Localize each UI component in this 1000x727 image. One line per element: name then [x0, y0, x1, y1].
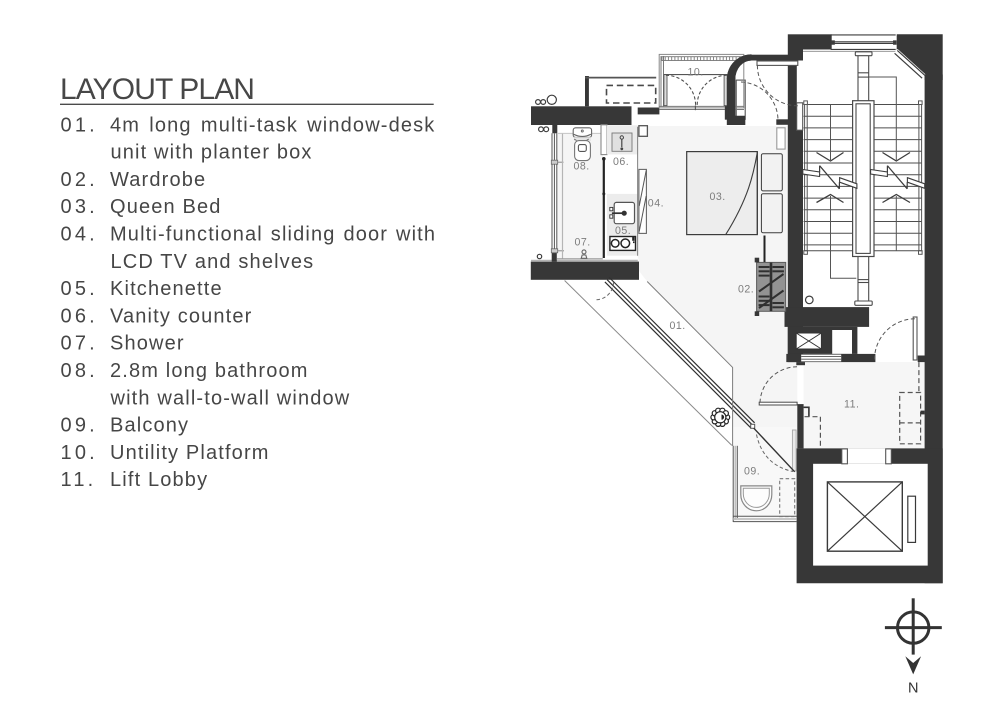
svg-text:09.: 09.	[61, 415, 98, 437]
svg-text:LAYOUT PLAN: LAYOUT PLAN	[60, 73, 254, 106]
svg-text:10.: 10.	[61, 442, 98, 464]
svg-text:03.: 03.	[61, 196, 98, 218]
svg-text:07.: 07.	[575, 237, 591, 249]
svg-text:N: N	[908, 681, 918, 697]
svg-text:Multi-functional sliding door: Multi-functional sliding door with	[110, 224, 436, 246]
svg-text:with wall-to-wall window: with wall-to-wall window	[110, 387, 351, 409]
svg-text:08.: 08.	[61, 360, 98, 382]
svg-text:06.: 06.	[613, 156, 629, 168]
svg-text:Queen Bed: Queen Bed	[110, 196, 222, 218]
svg-text:11.: 11.	[844, 399, 859, 411]
svg-text:Shower: Shower	[110, 333, 185, 355]
svg-text:04.: 04.	[648, 198, 664, 210]
svg-text:unit with planter box: unit with planter box	[111, 142, 313, 164]
svg-text:01.: 01.	[670, 320, 686, 332]
svg-text:LCD TV and shelves: LCD TV and shelves	[111, 251, 315, 273]
svg-text:05.: 05.	[615, 225, 631, 237]
svg-text:11.: 11.	[61, 469, 97, 491]
svg-text:01.: 01.	[61, 114, 98, 136]
svg-text:Kitchenette: Kitchenette	[110, 278, 223, 300]
svg-text:Lift Lobby: Lift Lobby	[110, 469, 208, 491]
svg-text:06.: 06.	[61, 305, 98, 327]
svg-text:Vanity counter: Vanity counter	[110, 305, 252, 327]
svg-text:09.: 09.	[744, 466, 760, 478]
svg-text:03.: 03.	[710, 191, 726, 203]
svg-text:05.: 05.	[61, 278, 98, 300]
svg-text:Balcony: Balcony	[110, 415, 189, 437]
svg-text:02.: 02.	[738, 284, 754, 296]
svg-text:2.8m long bathroom: 2.8m long bathroom	[110, 360, 309, 382]
svg-text:10.: 10.	[688, 66, 704, 78]
svg-text:04.: 04.	[61, 224, 98, 246]
svg-text:07.: 07.	[61, 333, 98, 355]
svg-text:02.: 02.	[61, 169, 98, 191]
svg-text:4m long multi-task window-desk: 4m long multi-task window-desk	[110, 114, 435, 136]
svg-text:Untility Platform: Untility Platform	[110, 442, 270, 464]
svg-text:Wardrobe: Wardrobe	[110, 169, 206, 191]
svg-text:08.: 08.	[574, 161, 590, 173]
